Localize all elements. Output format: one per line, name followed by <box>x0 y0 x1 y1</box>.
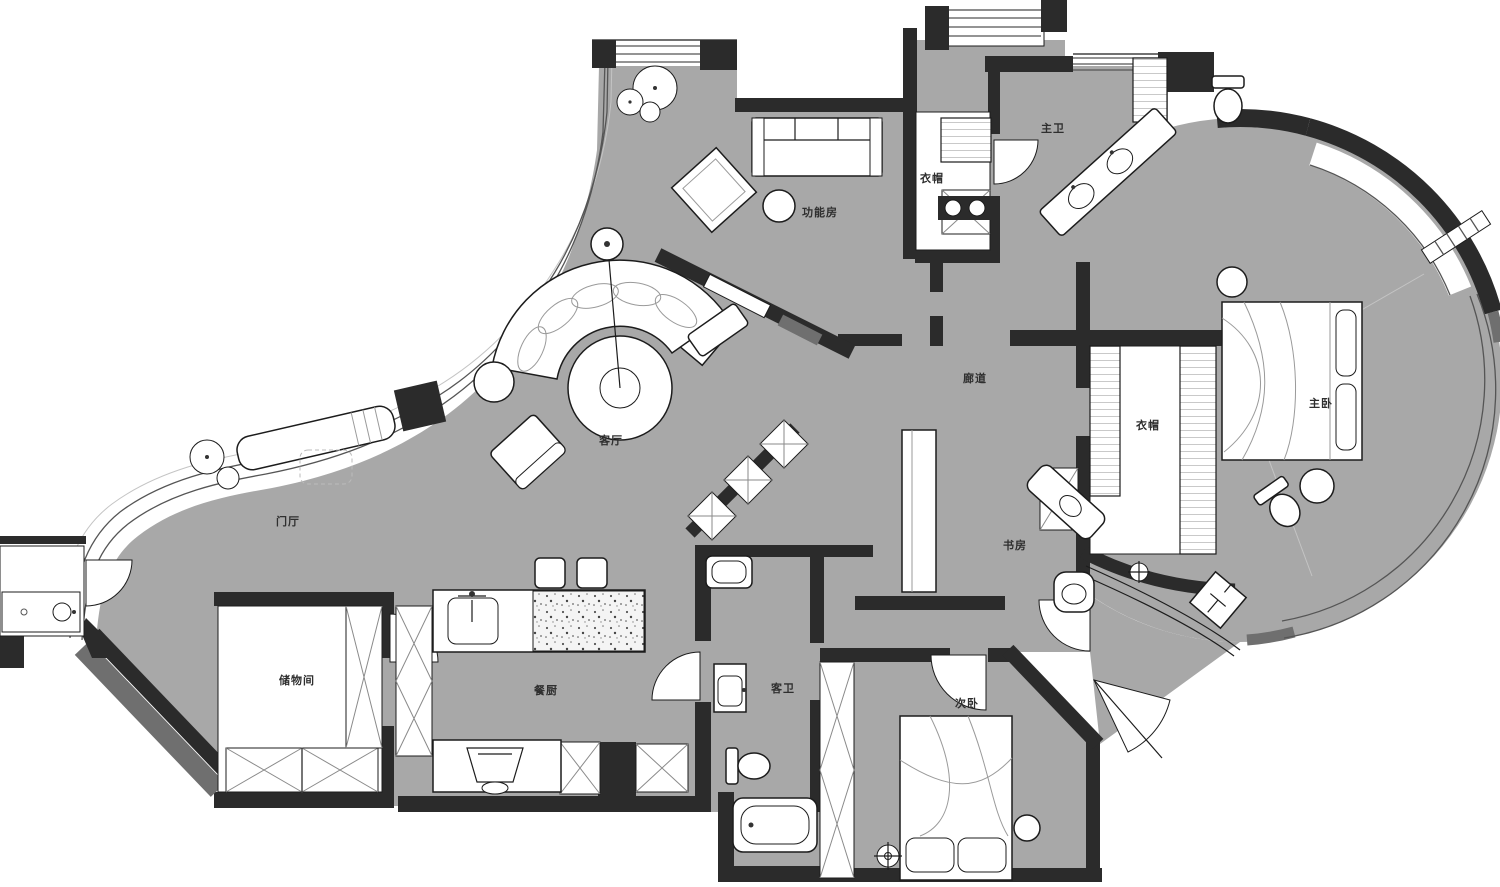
stool-master-1 <box>1217 267 1247 297</box>
room-label-gongnengfang: 功能房 <box>802 204 838 220</box>
room-label-zhuwo: 主卧 <box>1309 395 1333 411</box>
room-label-shufang: 书房 <box>1003 537 1027 553</box>
room-label-langdao: 廊道 <box>963 370 987 386</box>
bed-secondary <box>900 716 1012 880</box>
floor-plan-drawing <box>0 0 1500 887</box>
side-table-bedroom2 <box>1014 815 1040 841</box>
room-label-yimao-1: 衣帽 <box>920 170 944 186</box>
bed-master <box>1222 302 1362 460</box>
bedroom2-closet <box>820 662 854 878</box>
room-label-zhuwei: 主卫 <box>1041 120 1065 136</box>
toilet-master-bath <box>1212 76 1244 123</box>
kitchen-counter-cooktop <box>433 740 561 794</box>
plant-trees-left <box>190 440 239 489</box>
room-label-canchu: 餐厨 <box>534 682 558 698</box>
room-label-kewei: 客卫 <box>771 680 795 696</box>
room-label-yimao-2: 衣帽 <box>1136 417 1160 433</box>
floor-plan: 功能房主卫衣帽客厅廊道衣帽主卧门厅书房储物间餐厨客卫次卧 <box>0 0 1500 887</box>
basin-study <box>1054 572 1094 612</box>
room-label-ciwo: 次卧 <box>955 695 979 711</box>
room-label-chuwujian: 储物间 <box>279 672 315 688</box>
entry-vestibule <box>0 546 84 636</box>
sofa-function-room <box>752 118 882 176</box>
room-label-menting: 门厅 <box>276 513 300 529</box>
room-label-keting: 客厅 <box>599 432 623 448</box>
desk-study <box>902 430 936 592</box>
storage-room <box>218 606 382 792</box>
side-table-function-room <box>763 190 795 222</box>
stool-master-2 <box>1300 469 1334 503</box>
